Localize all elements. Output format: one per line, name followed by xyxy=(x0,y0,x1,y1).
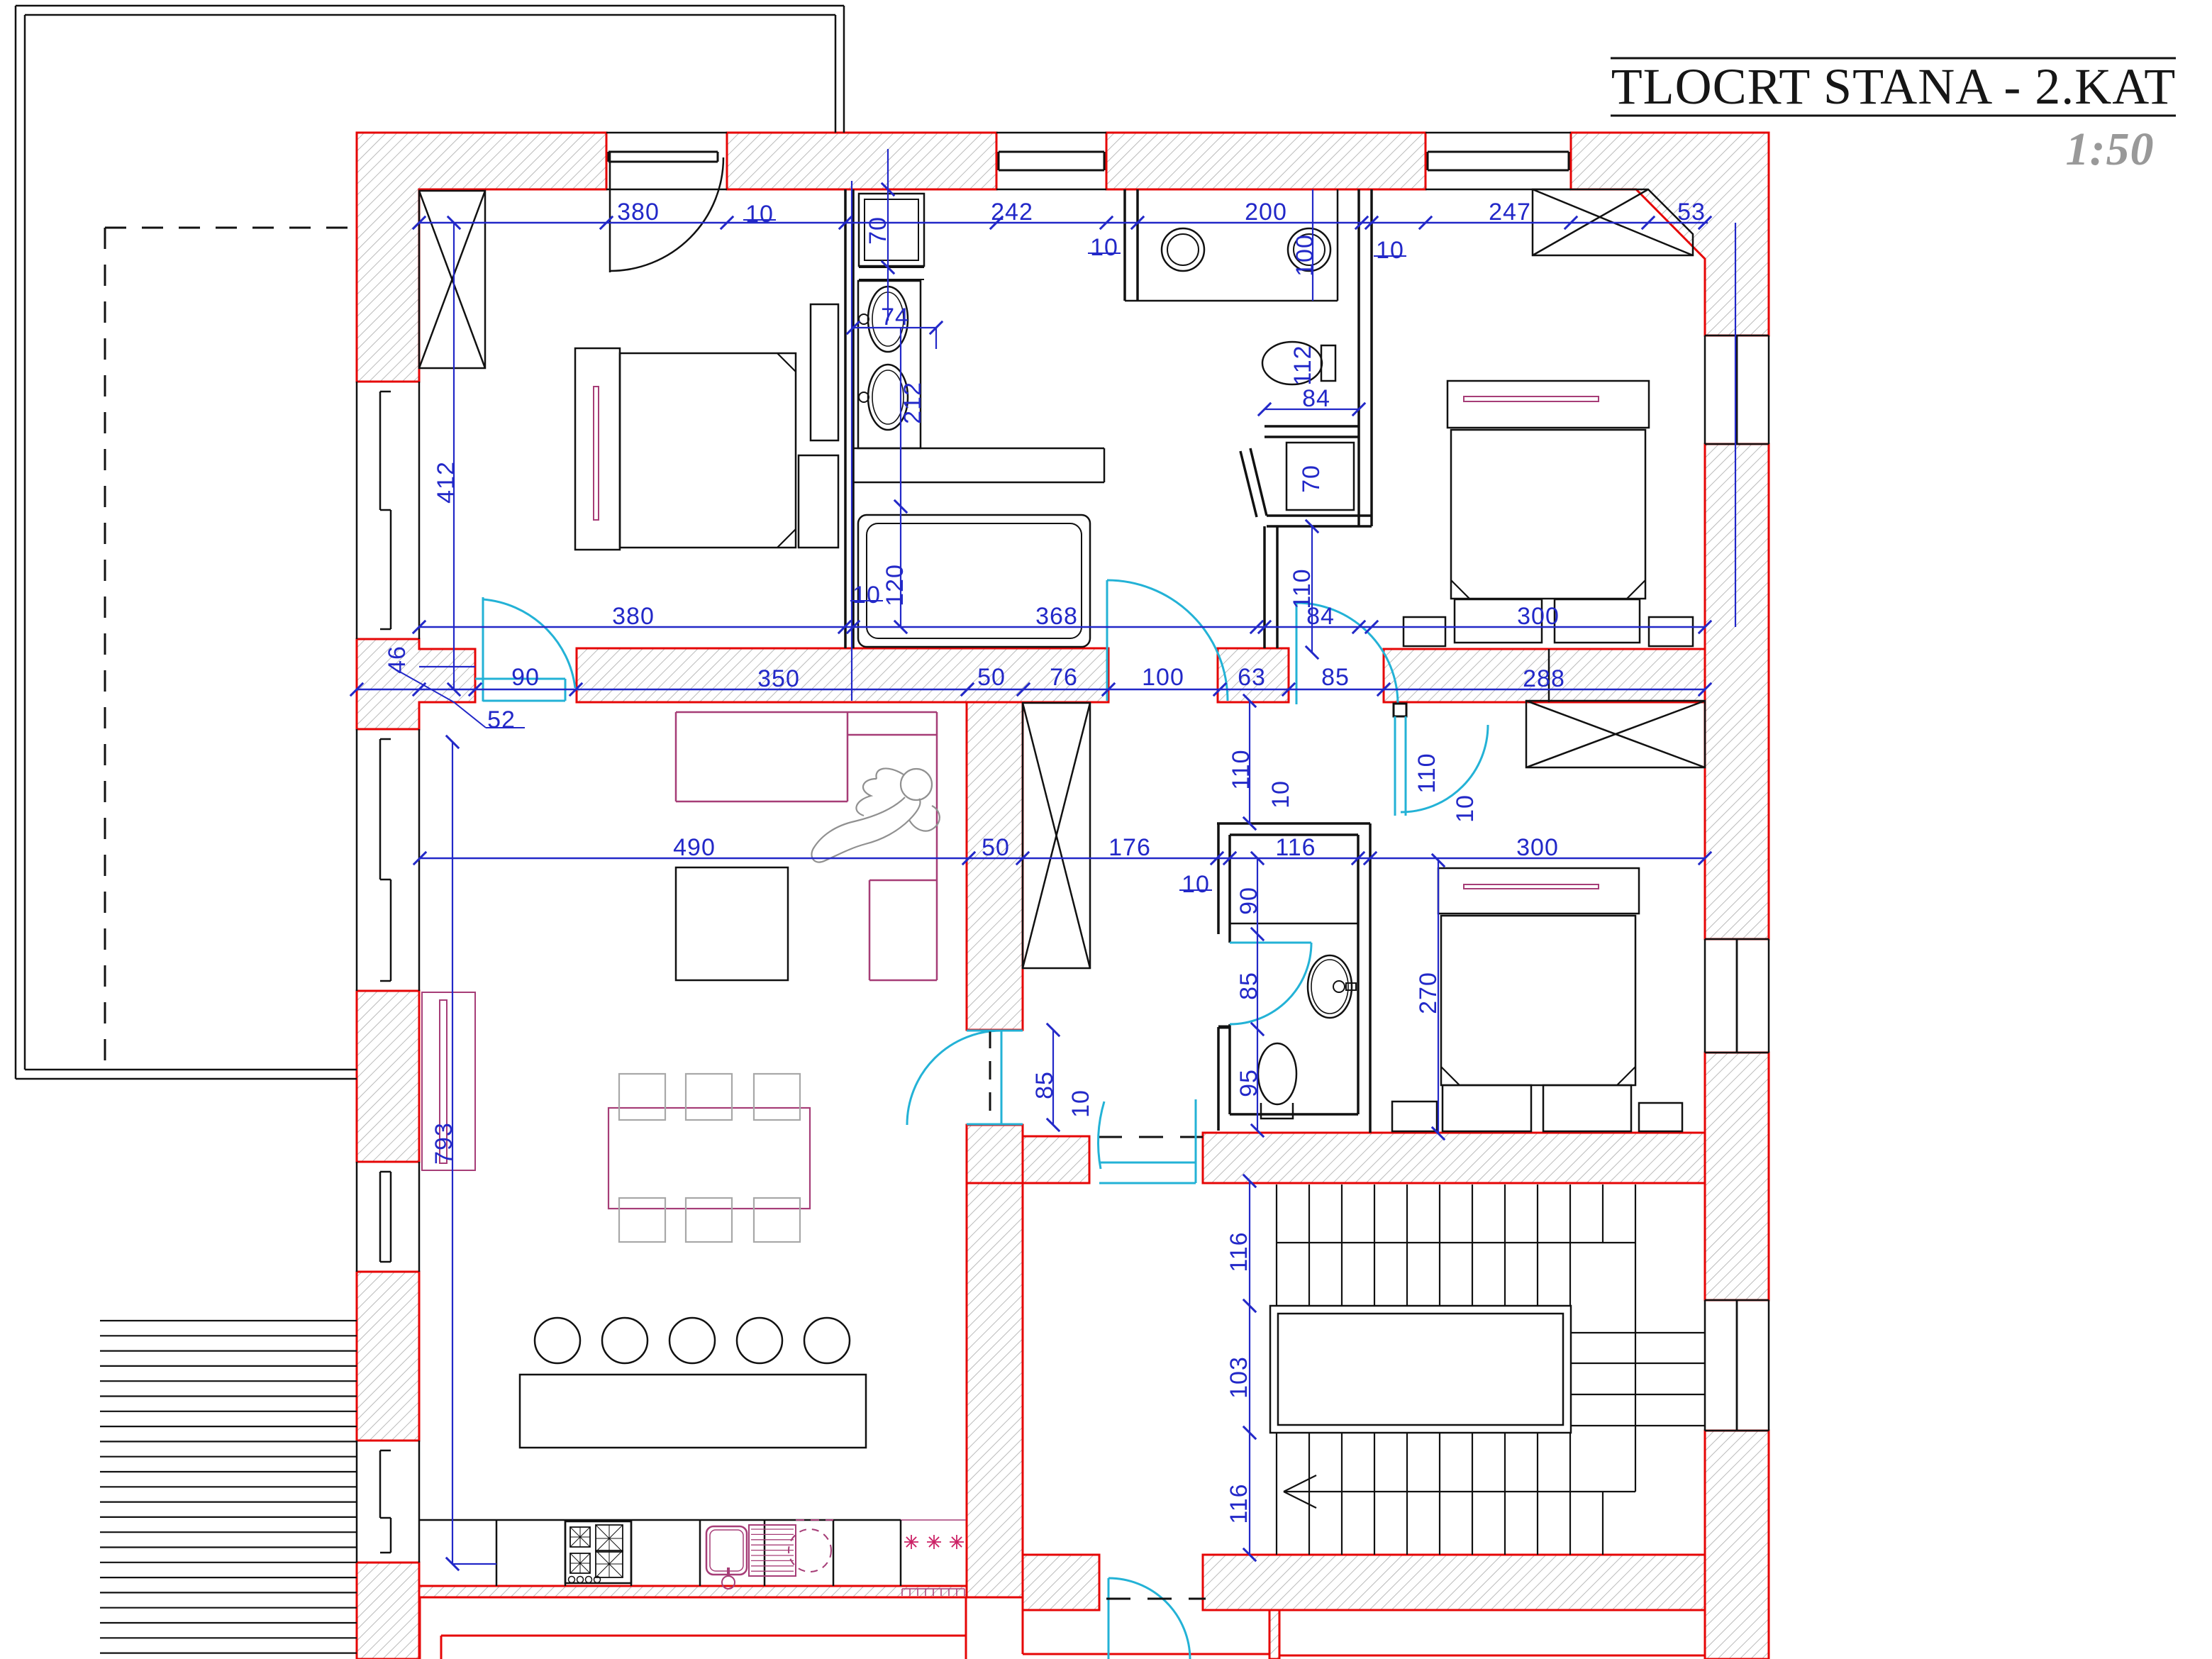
svg-text:100: 100 xyxy=(1291,234,1318,277)
svg-text:95: 95 xyxy=(1235,1069,1262,1097)
svg-text:10: 10 xyxy=(1090,234,1118,261)
svg-text:10: 10 xyxy=(852,582,881,609)
svg-text:110: 110 xyxy=(1289,568,1316,609)
svg-text:116: 116 xyxy=(1226,1231,1252,1272)
svg-text:176: 176 xyxy=(1108,834,1151,861)
svg-text:412: 412 xyxy=(433,461,460,504)
svg-text:300: 300 xyxy=(1516,834,1559,861)
svg-text:50: 50 xyxy=(977,664,1006,691)
svg-text:53: 53 xyxy=(1677,199,1706,226)
svg-text:85: 85 xyxy=(1321,664,1350,691)
svg-text:242: 242 xyxy=(991,199,1033,226)
svg-text:1:50: 1:50 xyxy=(2066,123,2155,175)
svg-text:84: 84 xyxy=(1302,385,1330,412)
svg-text:52: 52 xyxy=(487,706,516,733)
svg-text:76: 76 xyxy=(1050,664,1078,691)
svg-text:74: 74 xyxy=(881,304,909,331)
svg-text:10: 10 xyxy=(1182,871,1210,898)
svg-text:90: 90 xyxy=(511,664,540,691)
svg-text:70: 70 xyxy=(1298,465,1325,493)
svg-text:100: 100 xyxy=(1142,664,1184,691)
svg-text:110: 110 xyxy=(1413,753,1440,793)
svg-text:90: 90 xyxy=(1235,887,1262,915)
svg-text:50: 50 xyxy=(982,834,1010,861)
svg-text:212: 212 xyxy=(899,382,926,424)
svg-text:10: 10 xyxy=(1267,780,1294,809)
svg-text:247: 247 xyxy=(1489,199,1531,226)
svg-text:200: 200 xyxy=(1245,199,1287,226)
svg-text:85: 85 xyxy=(1031,1071,1058,1099)
svg-text:110: 110 xyxy=(1228,749,1255,789)
svg-text:368: 368 xyxy=(1035,603,1078,630)
svg-text:TLOCRT STANA - 2.KAT: TLOCRT STANA - 2.KAT xyxy=(1611,58,2177,115)
svg-text:270: 270 xyxy=(1415,972,1442,1014)
svg-text:300: 300 xyxy=(1517,603,1560,630)
svg-text:10: 10 xyxy=(745,201,774,228)
svg-text:490: 490 xyxy=(673,834,716,861)
svg-text:120: 120 xyxy=(882,564,908,606)
svg-text:116: 116 xyxy=(1275,834,1316,861)
svg-text:70: 70 xyxy=(865,216,891,245)
svg-text:793: 793 xyxy=(430,1122,457,1165)
svg-text:288: 288 xyxy=(1523,665,1565,692)
svg-text:85: 85 xyxy=(1235,972,1262,1000)
svg-text:116: 116 xyxy=(1226,1483,1252,1524)
svg-text:350: 350 xyxy=(757,665,800,692)
svg-text:380: 380 xyxy=(612,603,655,630)
svg-text:112: 112 xyxy=(1289,345,1316,385)
svg-text:10: 10 xyxy=(1452,794,1479,823)
svg-text:63: 63 xyxy=(1238,664,1266,691)
svg-text:380: 380 xyxy=(617,199,660,226)
svg-text:103: 103 xyxy=(1226,1356,1252,1399)
svg-text:46: 46 xyxy=(384,645,411,674)
svg-text:10: 10 xyxy=(1067,1089,1094,1118)
svg-text:10: 10 xyxy=(1376,237,1404,264)
